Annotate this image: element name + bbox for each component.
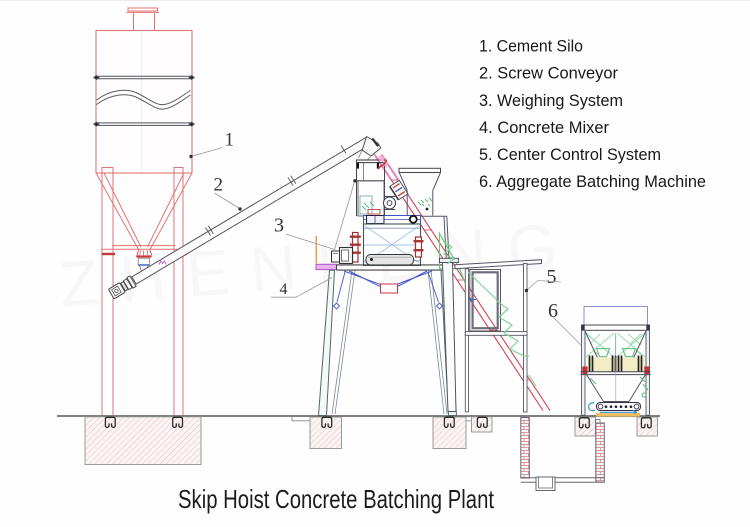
svg-text:Skip Hoist Concrete Batching P: Skip Hoist Concrete Batching Plant [178,484,495,514]
svg-text:2. Screw Conveyor: 2. Screw Conveyor [479,64,618,83]
svg-text:3. Weighing System: 3. Weighing System [479,91,623,110]
svg-text:1: 1 [225,130,235,151]
svg-text:4: 4 [280,281,288,298]
svg-text:1. Cement Silo: 1. Cement Silo [479,37,583,56]
svg-text:5: 5 [547,266,557,288]
svg-text:6. Aggregate Batching Machine: 6. Aggregate Batching Machine [479,172,706,191]
svg-text:2: 2 [214,175,224,196]
svg-text:5. Center Control System: 5. Center Control System [479,145,661,164]
svg-text:3: 3 [274,215,284,237]
svg-text:6: 6 [548,300,558,322]
svg-text:4. Concrete Mixer: 4. Concrete Mixer [479,118,609,137]
